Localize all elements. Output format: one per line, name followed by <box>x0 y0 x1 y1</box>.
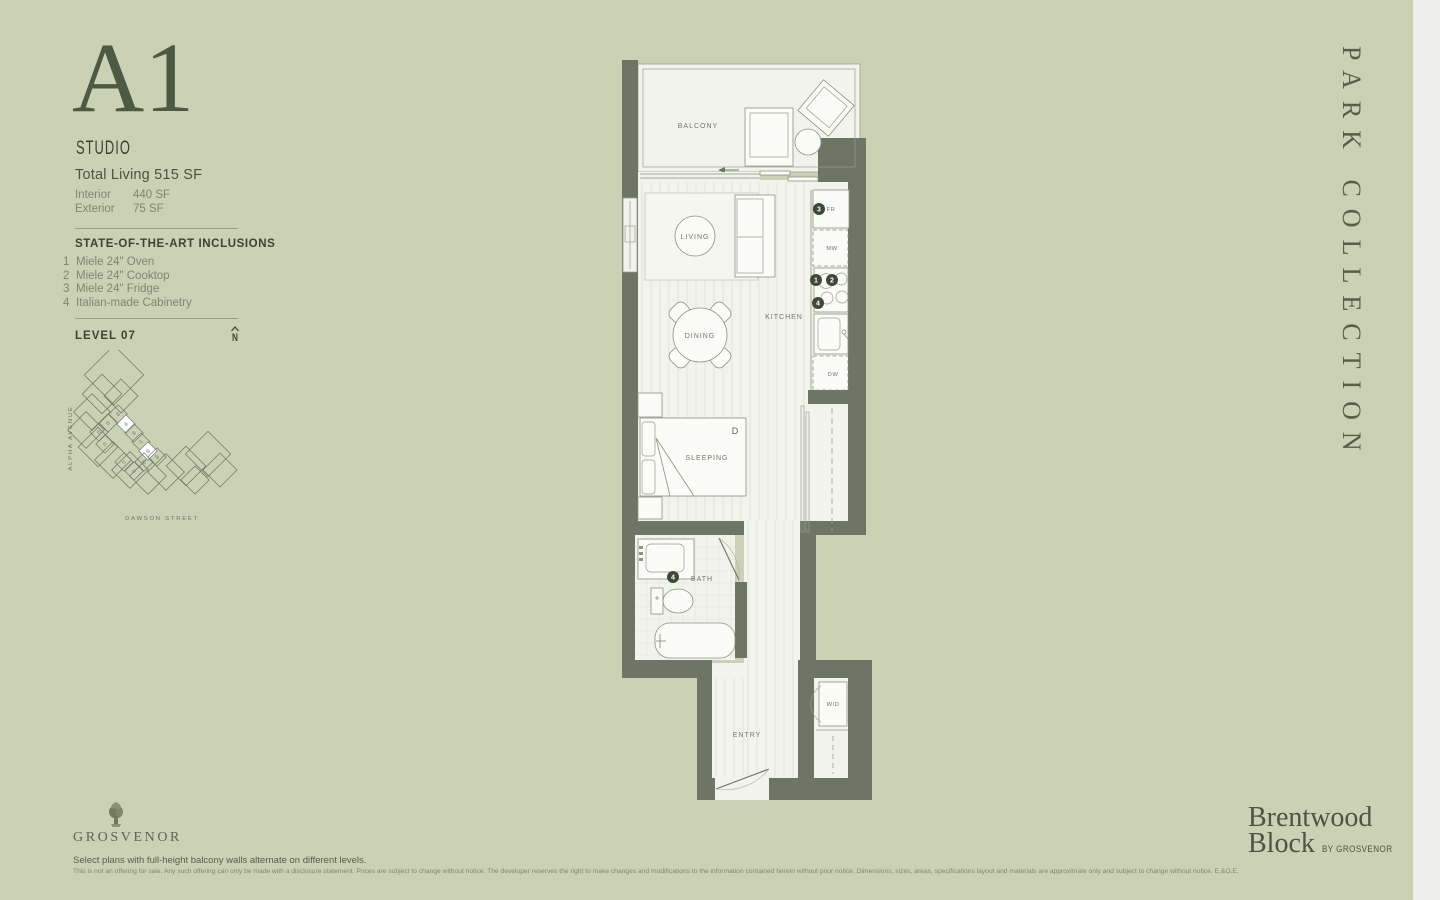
exterior-value: 75 SF <box>133 203 164 215</box>
key-plan-buildings: 040506070809030201121110 <box>68 350 237 494</box>
inclusion-text: Miele 24" Fridge <box>76 283 159 295</box>
key-plan-unit-number: 07 <box>138 439 145 446</box>
grosvenor-tree-icon <box>103 800 129 828</box>
inclusion-text: Miele 24" Oven <box>76 256 154 268</box>
label-bath: BATH <box>691 576 713 583</box>
developer-logo: GROSVENOR <box>73 800 253 846</box>
window-wall <box>638 171 818 181</box>
unit-type: STUDIO <box>76 138 131 160</box>
key-plan-shape <box>74 394 111 431</box>
brand-name-line2: Block <box>1248 830 1315 858</box>
collection-title: PARK COLLECTION <box>1336 46 1366 463</box>
key-plan-unit-number: 06 <box>131 430 138 437</box>
interior-value: 440 SF <box>133 189 170 201</box>
sofa <box>735 195 775 277</box>
label-kitchen: KITCHEN <box>765 314 803 321</box>
interior-area-row: Interior 440 SF <box>75 189 170 201</box>
inclusions-title: STATE-OF-THE-ART INCLUSIONS <box>75 238 275 250</box>
marker-fridge-num: 3 <box>817 207 821 214</box>
street-alpha-avenue: ALPHA AVENUE <box>68 406 74 471</box>
key-plan-shape <box>166 446 206 486</box>
key-plan-unit-number: 10 <box>141 459 148 466</box>
floor-plan: 3 1 2 4 4 BALCONY LIVING DINING KITCHEN … <box>622 60 872 800</box>
inclusion-item: 3 Miele 24" Fridge <box>63 283 159 295</box>
balcony-table <box>795 129 821 155</box>
divider <box>75 228 238 229</box>
label-balcony: BALCONY <box>678 123 718 130</box>
inclusion-num: 2 <box>63 270 76 282</box>
label-sleeping: SLEEPING <box>685 455 728 462</box>
label-dishwasher: DW <box>828 372 839 378</box>
marker-cooktop-num: 2 <box>830 278 834 285</box>
key-plan-unit-number: 03 <box>105 420 112 427</box>
label-bed-size: D <box>732 426 739 436</box>
key-plan-unit-number: 02 <box>96 429 103 436</box>
key-plan-shape <box>148 454 185 491</box>
unit-number: A1 <box>72 28 194 128</box>
grosvenor-wordmark: GROSVENOR <box>73 830 253 846</box>
label-dining: DINING <box>685 333 716 340</box>
living-furniture <box>645 193 775 280</box>
north-arrow: N <box>228 326 242 344</box>
living-window <box>623 198 637 272</box>
page-edge-strip <box>1413 0 1440 900</box>
inclusion-item: 1 Miele 24" Oven <box>63 256 154 268</box>
total-living-area: Total Living 515 SF <box>75 167 202 183</box>
inclusion-item: 4 Italian-made Cabinetry <box>63 297 192 309</box>
interior-label: Interior <box>75 189 133 201</box>
key-plan-unit-number: 04 <box>115 411 122 418</box>
nightstand <box>638 497 662 519</box>
street-dawson-street: DAWSON STREET <box>125 516 199 522</box>
key-plan: ALPHA AVENUE DAWSON STREET 0405060708090… <box>58 350 248 525</box>
marker-cabinetry-kitchen-num: 4 <box>816 301 820 308</box>
inclusion-num: 3 <box>63 283 76 295</box>
exterior-label: Exterior <box>75 203 133 215</box>
key-plan-shape <box>181 466 209 494</box>
kitchen-fixtures <box>811 190 849 390</box>
inclusion-text: Miele 24" Cooktop <box>76 270 170 282</box>
toilet <box>651 588 693 614</box>
label-entry: ENTRY <box>733 732 762 739</box>
inclusion-item: 2 Miele 24" Cooktop <box>63 270 170 282</box>
divider <box>75 318 238 319</box>
brand-byline: BY GROSVENOR <box>1322 845 1392 855</box>
vanity <box>638 539 694 579</box>
level-label: LEVEL 07 <box>75 330 136 342</box>
key-plan-shape <box>203 453 237 487</box>
bathtub <box>655 623 735 658</box>
label-fridge: FR <box>827 207 836 213</box>
nightstand <box>638 393 662 417</box>
legal-disclaimer: This is not an offering for sale. Any su… <box>73 868 1239 875</box>
north-letter: N <box>230 333 241 344</box>
exterior-area-row: Exterior 75 SF <box>75 203 164 215</box>
inclusion-num: 4 <box>63 297 76 309</box>
marker-oven-num: 1 <box>814 278 818 285</box>
inclusion-text: Italian-made Cabinetry <box>76 297 192 309</box>
label-microwave: MW <box>826 246 837 252</box>
label-washer-dryer: W/D <box>827 702 840 708</box>
footnote: Select plans with full-height balcony wa… <box>73 855 366 866</box>
inclusion-num: 1 <box>63 256 76 268</box>
brand-logo: Brentwood Block BY GROSVENOR <box>1248 804 1405 858</box>
label-living: LIVING <box>681 234 710 241</box>
key-plan-shape <box>84 350 143 405</box>
marker-cabinetry-bath-num: 4 <box>671 575 675 582</box>
key-plan-shape <box>185 431 230 476</box>
